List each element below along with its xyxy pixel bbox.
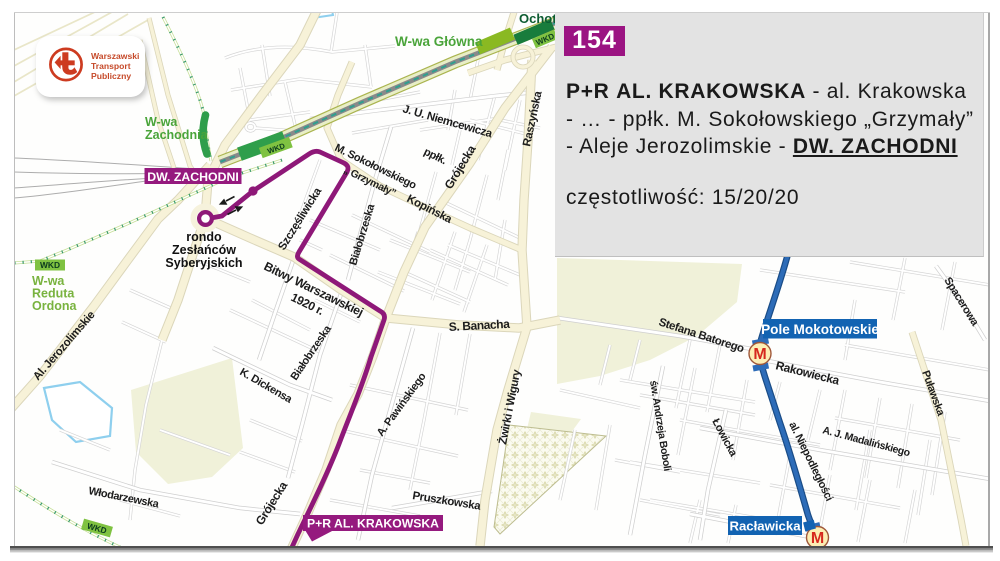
svg-text:W-wa Główna: W-wa Główna <box>395 34 483 49</box>
svg-text:M: M <box>753 346 766 363</box>
svg-text:Pole Mokotowskie: Pole Mokotowskie <box>761 322 879 337</box>
svg-text:Zachodnia: Zachodnia <box>145 128 209 142</box>
svg-text:W-wa: W-wa <box>145 115 178 129</box>
svg-text:Syberyjskich: Syberyjskich <box>165 256 242 270</box>
svg-text:Zesłańców: Zesłańców <box>172 243 236 257</box>
svg-text:Ordona: Ordona <box>32 299 77 313</box>
svg-text:M: M <box>811 530 824 547</box>
svg-text:rondo: rondo <box>186 230 222 244</box>
svg-text:P+R AL. KRAKOWSKA: P+R AL. KRAKOWSKA <box>307 516 439 530</box>
svg-text:DW. ZACHODNI: DW. ZACHODNI <box>147 170 239 184</box>
svg-text:Racławicka: Racławicka <box>729 518 801 533</box>
svg-text:WKD: WKD <box>40 260 60 270</box>
